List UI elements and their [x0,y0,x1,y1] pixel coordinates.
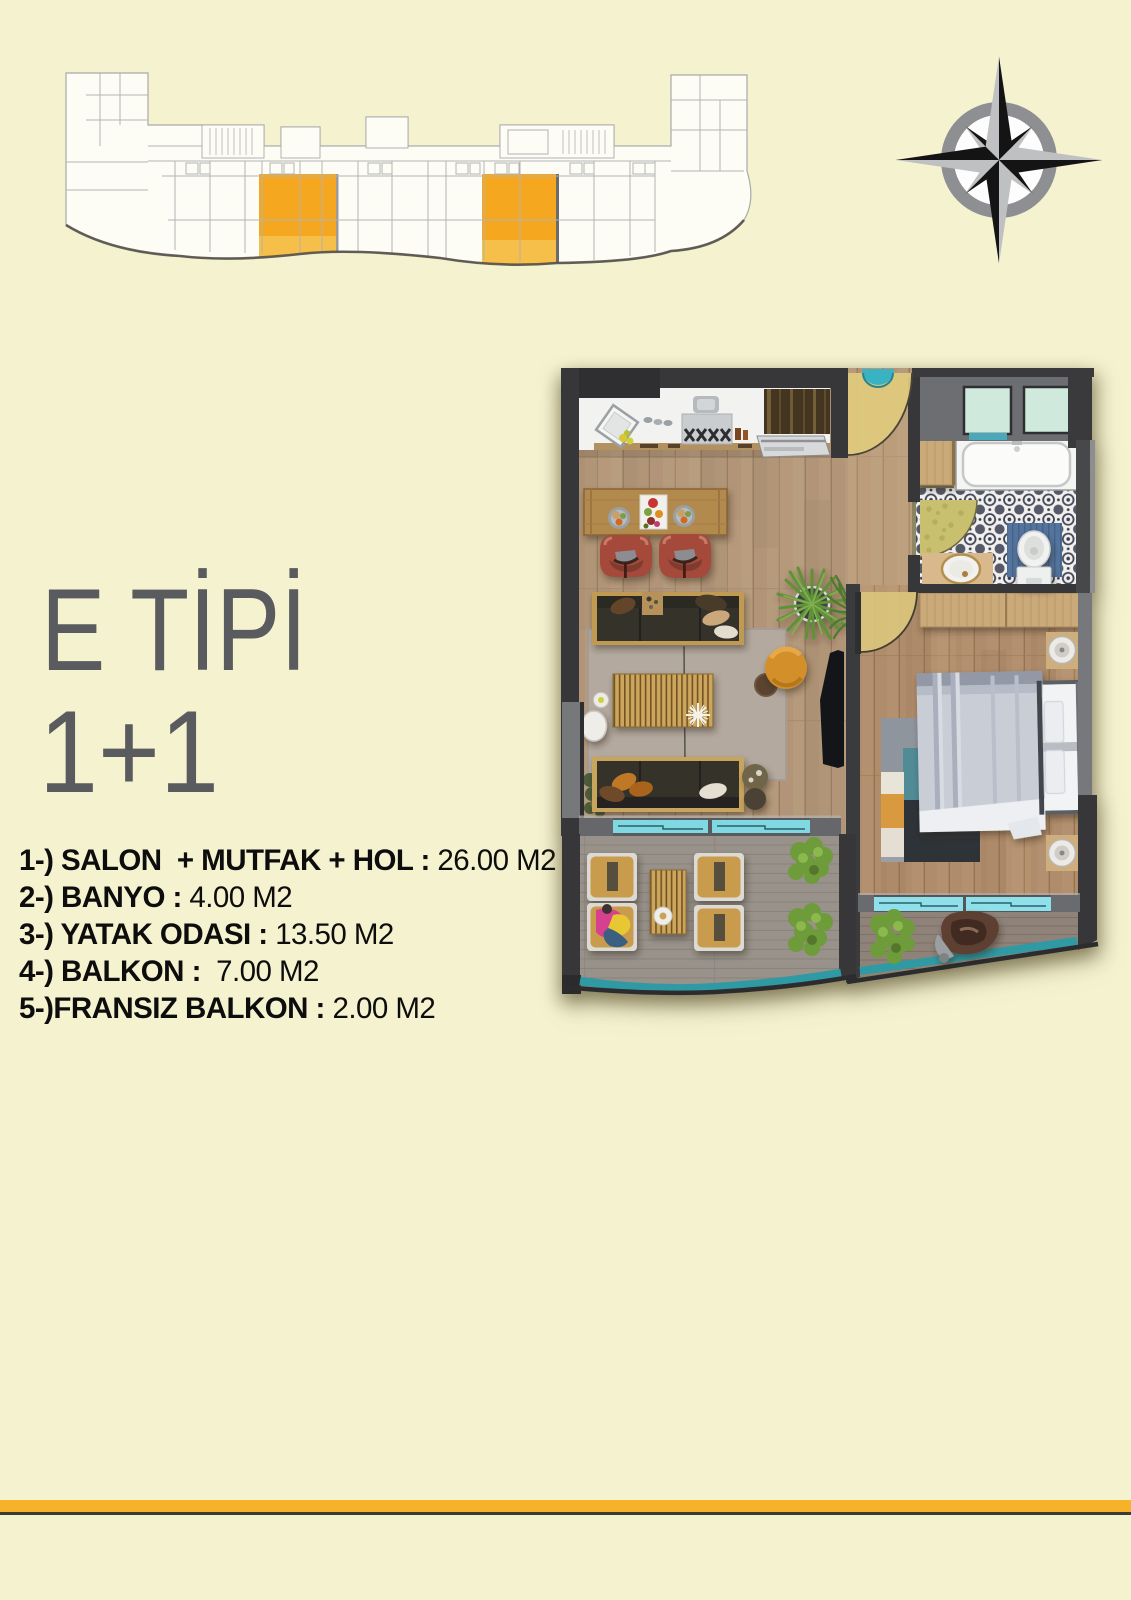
svg-text:E TİPİ: E TİPİ [41,564,307,695]
svg-text:1+1: 1+1 [40,686,219,810]
